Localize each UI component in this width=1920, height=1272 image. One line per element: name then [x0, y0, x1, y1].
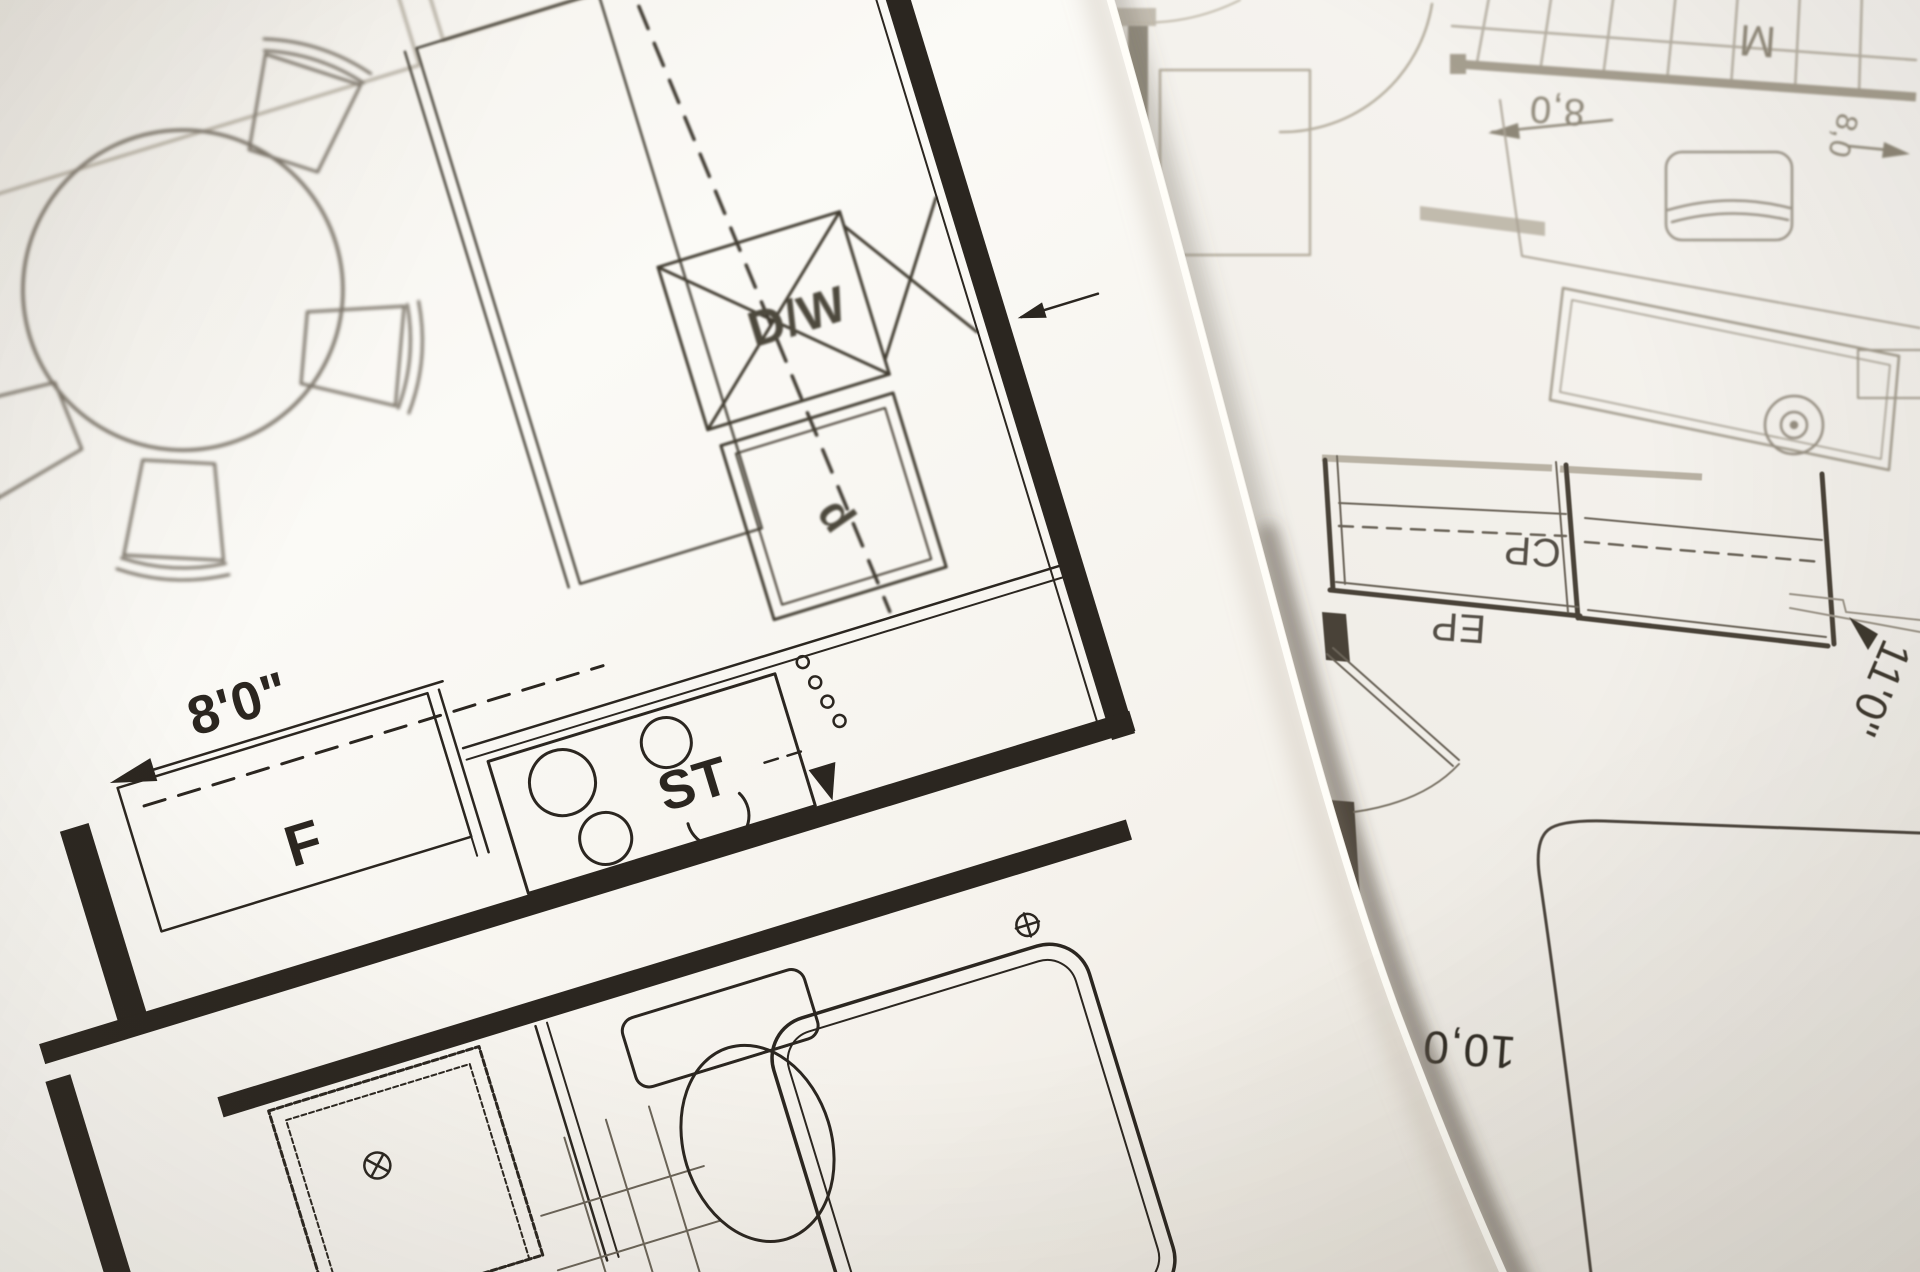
wall-band-cap — [1450, 54, 1466, 74]
closet-label: CP — [1502, 527, 1563, 575]
blueprint-scene: 8,0 8,0 M — [0, 0, 1920, 1272]
panel-label: EP — [1429, 603, 1487, 651]
room-label-m: M — [1737, 15, 1778, 67]
dim-8-label: 8,0 — [1528, 87, 1587, 133]
photo-of-blueprints: 8,0 8,0 M — [0, 0, 1920, 1272]
